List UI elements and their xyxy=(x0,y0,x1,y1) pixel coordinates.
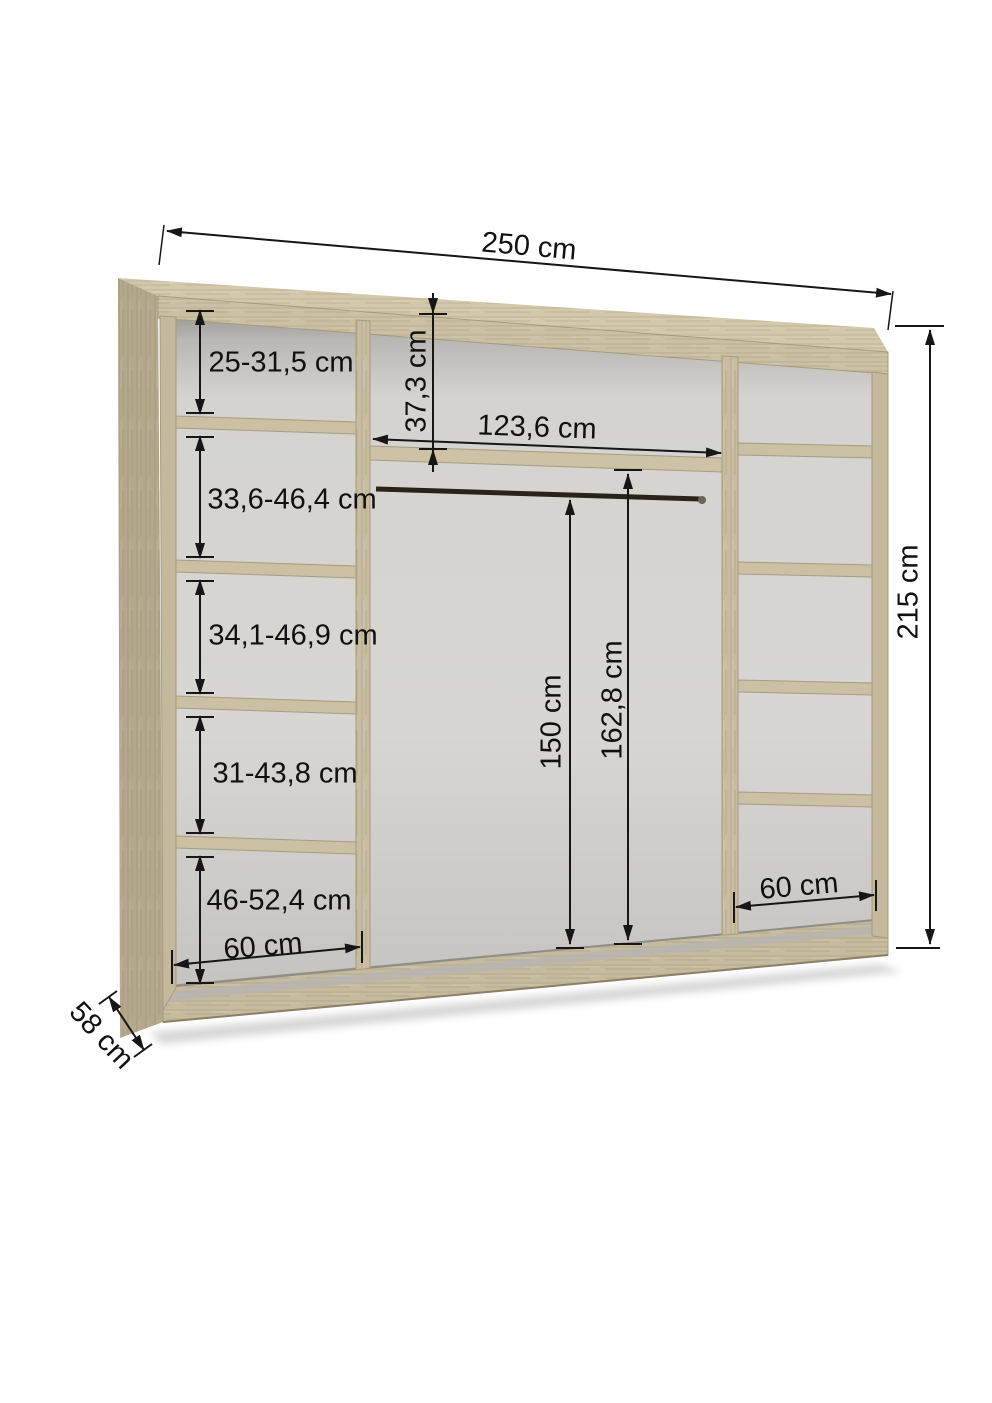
diagram-canvas xyxy=(0,0,992,1403)
wardrobe-dimension-diagram: 250 cm 215 cm 58 cm 25-31,5 cm 33,6-46,4… xyxy=(0,0,992,1403)
right-shelf-4 xyxy=(738,792,872,807)
right-shelf-1 xyxy=(738,443,872,458)
rail-height-label: 150 cm xyxy=(538,674,567,769)
right-partition-grain xyxy=(722,356,738,935)
middle-top-drop-label: 37,3 cm xyxy=(403,329,432,432)
dim-overall-width-leader-left xyxy=(159,225,164,265)
right-shelf-2 xyxy=(738,562,872,577)
dim-depth-tick-top xyxy=(99,991,117,1004)
left-compartment-5-label: 46-52,4 cm xyxy=(206,887,351,916)
wardrobe-side-panel-grain xyxy=(118,278,163,1038)
dim-overall-width-leader-right xyxy=(888,291,893,330)
overall-height-label: 215 cm xyxy=(895,544,924,639)
left-compartment-1-label: 25-31,5 cm xyxy=(208,349,353,378)
right-shelf-3 xyxy=(738,680,872,695)
left-compartment-2-label: 33,6-46,4 cm xyxy=(207,486,376,515)
middle-width-label: 123,6 cm xyxy=(477,411,597,444)
left-column-width-label: 60 cm xyxy=(222,929,303,965)
left-compartment-3-label: 34,1-46,9 cm xyxy=(208,622,377,651)
rail-bracket xyxy=(698,496,706,504)
right-column-width-label: 60 cm xyxy=(758,869,839,905)
left-wall-board xyxy=(160,316,176,1010)
middle-shelf-height-label: 162,8 cm xyxy=(599,640,628,759)
right-wall-board xyxy=(872,372,888,938)
left-compartment-4-label: 31-43,8 cm xyxy=(212,760,357,789)
